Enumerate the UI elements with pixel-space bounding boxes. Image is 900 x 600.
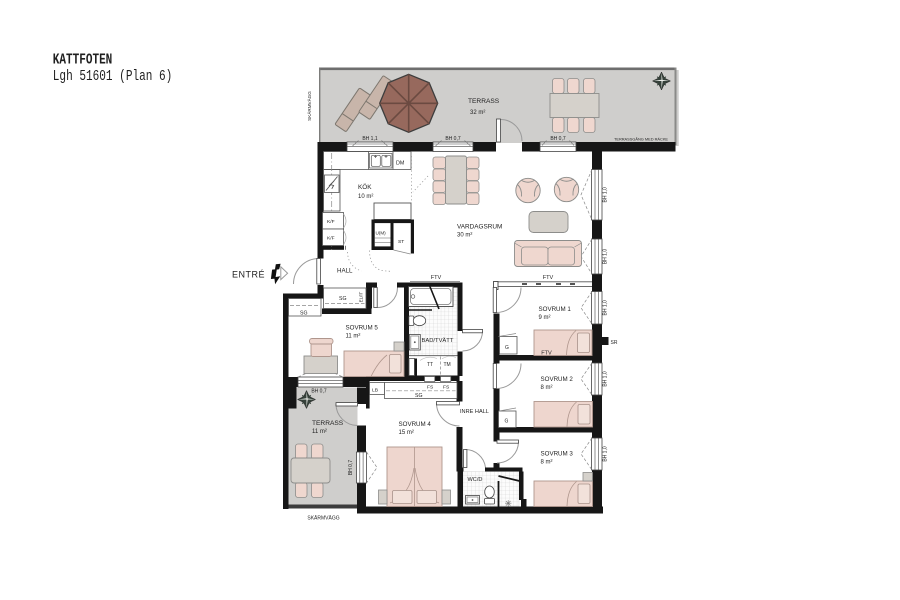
svg-text:11 m²: 11 m² — [312, 429, 327, 435]
svg-text:BH 1,0: BH 1,0 — [603, 371, 609, 387]
svg-text:SOVRUM 3: SOVRUM 3 — [541, 451, 574, 458]
svg-text:8 m²: 8 m² — [541, 385, 553, 391]
svg-text:VARDAGSRUM: VARDAGSRUM — [457, 224, 502, 231]
svg-text:BH 0,7: BH 0,7 — [445, 136, 461, 142]
svg-text:BH 1,1: BH 1,1 — [362, 136, 378, 142]
svg-text:8 m²: 8 m² — [541, 460, 553, 466]
svg-text:SG: SG — [339, 296, 347, 302]
svg-text:SG: SG — [300, 311, 308, 317]
svg-text:TERRASS: TERRASS — [312, 420, 344, 427]
svg-text:FTV: FTV — [431, 275, 442, 281]
svg-text:Lgh 51601 (Plan 6): Lgh 51601 (Plan 6) — [53, 69, 173, 85]
svg-text:EL/IT: EL/IT — [359, 291, 364, 302]
svg-text:15 m²: 15 m² — [399, 430, 414, 436]
svg-text:11 m²: 11 m² — [346, 334, 361, 340]
svg-text:TT: TT — [427, 362, 433, 368]
svg-text:U(M): U(M) — [376, 231, 387, 236]
svg-text:KATTFOTEN: KATTFOTEN — [53, 52, 113, 68]
svg-text:ENTRÉ: ENTRÉ — [232, 270, 265, 280]
svg-text:HALL: HALL — [337, 268, 353, 275]
svg-text:TERRASSGÅNG MED RÄCKE: TERRASSGÅNG MED RÄCKE — [614, 137, 668, 142]
svg-text:30 m²: 30 m² — [457, 232, 472, 238]
svg-text:BH 1,0: BH 1,0 — [603, 300, 609, 316]
svg-text:32 m²: 32 m² — [470, 110, 485, 116]
svg-text:BH 0,7: BH 0,7 — [348, 460, 354, 476]
svg-text:BH 0,7: BH 0,7 — [311, 389, 327, 395]
svg-text:BH 1,0: BH 1,0 — [603, 187, 609, 203]
svg-text:BH 0,7: BH 0,7 — [550, 136, 566, 142]
svg-text:SKÄRMVÄGG: SKÄRMVÄGG — [306, 91, 312, 121]
svg-text:G: G — [505, 419, 509, 425]
svg-text:K/F: K/F — [327, 236, 335, 242]
svg-text:G: G — [505, 345, 509, 351]
svg-text:SR: SR — [611, 340, 618, 346]
svg-text:SOVRUM 1: SOVRUM 1 — [539, 306, 572, 313]
svg-text:BH 1,0: BH 1,0 — [603, 249, 609, 265]
svg-text:SKÄRMVÄGG: SKÄRMVÄGG — [307, 515, 339, 522]
svg-text:DM: DM — [396, 161, 405, 167]
svg-text:TM: TM — [444, 362, 451, 368]
svg-text:FTV: FTV — [543, 275, 554, 281]
svg-text:FTV: FTV — [541, 351, 552, 357]
svg-text:K/F: K/F — [327, 219, 335, 225]
svg-text:9 m²: 9 m² — [539, 315, 551, 321]
svg-text:SOVRUM 2: SOVRUM 2 — [541, 376, 574, 383]
svg-text:SOVRUM 5: SOVRUM 5 — [346, 325, 379, 332]
svg-text:SG: SG — [415, 393, 423, 399]
svg-text:INRE HALL: INRE HALL — [460, 409, 489, 415]
svg-text:BH 1,0: BH 1,0 — [603, 446, 609, 462]
svg-text:ST: ST — [398, 239, 404, 245]
svg-text:SOVRUM 4: SOVRUM 4 — [399, 421, 432, 428]
svg-text:WC/D: WC/D — [468, 477, 483, 483]
svg-text:FS: FS — [443, 384, 450, 390]
svg-text:TERRASS: TERRASS — [468, 98, 500, 105]
svg-text:BAD/TVÄTT: BAD/TVÄTT — [422, 337, 454, 344]
svg-text:KÖK: KÖK — [358, 183, 372, 191]
svg-text:FS: FS — [427, 384, 434, 390]
svg-text:10 m²: 10 m² — [358, 194, 373, 200]
svg-text:LB: LB — [372, 388, 378, 394]
